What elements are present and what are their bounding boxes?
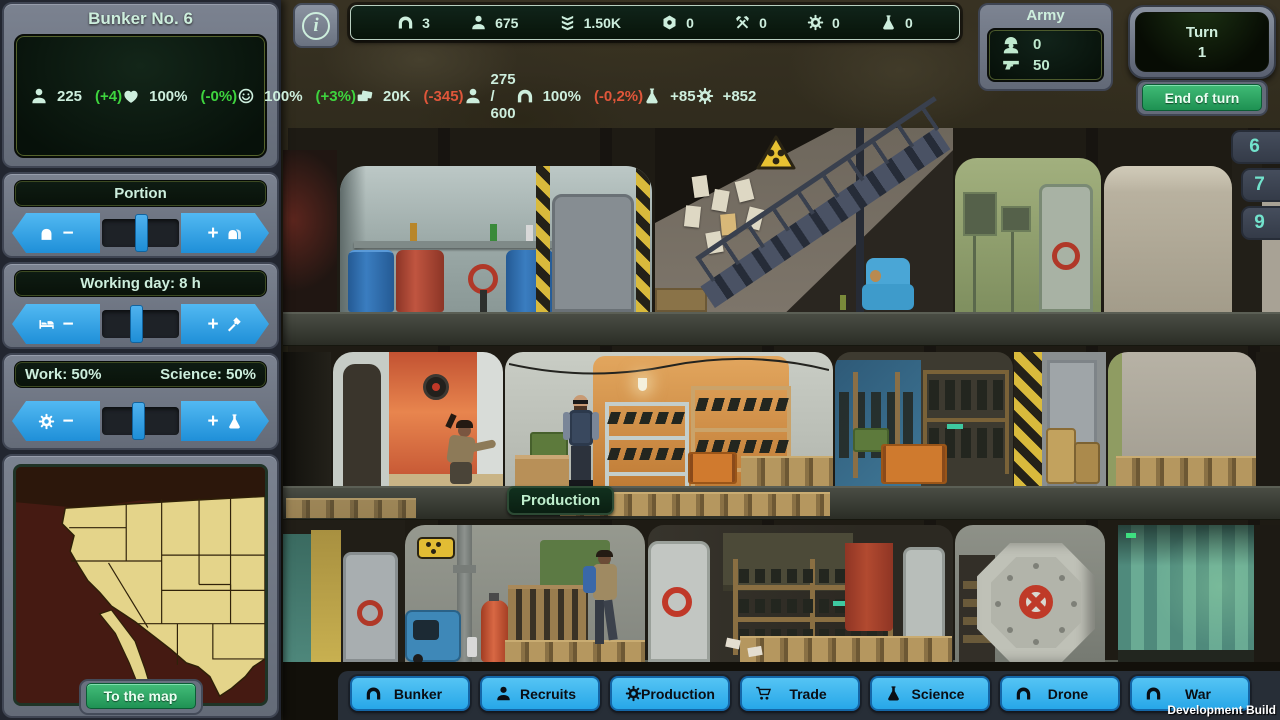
pipe-flange bbox=[453, 565, 476, 573]
stat-production: +852 bbox=[696, 42, 757, 150]
radiation-sign bbox=[755, 134, 797, 172]
stat-capacity: 275 / 600 bbox=[464, 42, 516, 150]
resource-tools: 0 bbox=[734, 14, 767, 31]
rank-icon bbox=[559, 14, 576, 31]
balance-header: Work: 50% Science: 50% bbox=[14, 361, 267, 388]
floor3-left bbox=[283, 520, 405, 662]
valve-pipe bbox=[480, 290, 487, 312]
weapon-rack bbox=[605, 402, 689, 486]
tools-icon bbox=[734, 14, 751, 31]
turn-panel: Turn 1 bbox=[1128, 5, 1276, 79]
minus-sign: − bbox=[62, 224, 73, 243]
machine-window bbox=[413, 620, 439, 640]
bunker-icon bbox=[1015, 685, 1032, 702]
yellow-wall bbox=[311, 530, 341, 662]
bunker-icon bbox=[397, 14, 414, 31]
plus-sign: + bbox=[207, 315, 218, 334]
pinned-paper bbox=[692, 175, 710, 198]
hazard-column bbox=[1014, 352, 1042, 486]
turn-display: Turn 1 bbox=[1135, 12, 1269, 72]
stat-condition: 100%(-0,2%) bbox=[516, 42, 644, 150]
barrel-blue bbox=[348, 250, 394, 312]
hair bbox=[596, 550, 613, 557]
teal-wall bbox=[283, 534, 311, 662]
floor-pallets bbox=[740, 636, 952, 662]
work-increase-button[interactable]: − bbox=[12, 401, 100, 441]
bed-icon bbox=[38, 316, 55, 333]
pinned-paper bbox=[735, 178, 755, 202]
workday-slider-track[interactable] bbox=[102, 310, 179, 338]
electrical-panel bbox=[963, 192, 997, 236]
walkway-planks bbox=[505, 640, 645, 662]
room-name-badge: Production bbox=[507, 486, 614, 515]
info-icon: i bbox=[302, 12, 330, 40]
resource-rank: 1.50K bbox=[559, 14, 621, 31]
character-walker[interactable] bbox=[585, 552, 623, 654]
resource-value: 0 bbox=[759, 15, 767, 31]
weapons-count: 50 bbox=[1033, 57, 1050, 74]
turn-number: 1 bbox=[1198, 44, 1206, 61]
stat-population: 225(+4) bbox=[30, 42, 122, 150]
floor-tab-6[interactable]: 6 bbox=[1231, 130, 1280, 164]
gun-row bbox=[607, 412, 687, 424]
stat-value: 275 / 600 bbox=[491, 71, 516, 122]
end-of-turn-button[interactable]: End of turn bbox=[1142, 84, 1262, 111]
pinned-paper bbox=[684, 205, 701, 227]
flask-icon bbox=[226, 413, 243, 430]
army-panel: Army 0 50 bbox=[978, 3, 1113, 91]
wire bbox=[973, 236, 976, 312]
working-day-slider: − + bbox=[12, 304, 269, 344]
door-opening bbox=[343, 364, 381, 486]
workday-increase-button[interactable]: + bbox=[181, 304, 269, 344]
flask-icon bbox=[885, 685, 902, 702]
room-electrical[interactable] bbox=[955, 158, 1101, 312]
science-icon bbox=[643, 87, 661, 105]
legs bbox=[450, 462, 472, 484]
minus-sign: − bbox=[62, 315, 73, 334]
vest-torso bbox=[569, 410, 593, 446]
nav-recruits-button[interactable]: Recruits bbox=[480, 676, 600, 711]
bunker-stats-panel: Bunker No. 6 225(+4) 100%(-0%) 100%(+3%)… bbox=[2, 2, 279, 168]
floor2-left-dark bbox=[283, 352, 331, 486]
floor-tab-9[interactable]: 9 bbox=[1241, 206, 1280, 240]
leg bbox=[595, 600, 604, 644]
army-soldiers: 0 bbox=[1001, 35, 1090, 55]
workday-decrease-button[interactable]: − bbox=[12, 304, 100, 344]
legs bbox=[571, 446, 591, 480]
room-ceiling-light bbox=[1104, 166, 1232, 192]
info-button[interactable]: i bbox=[293, 3, 339, 48]
population-icon bbox=[470, 14, 487, 31]
hair bbox=[456, 420, 473, 428]
nav-science-button[interactable]: Science bbox=[870, 676, 990, 711]
room-storage-barrels[interactable] bbox=[340, 166, 652, 312]
turn-label: Turn bbox=[1186, 24, 1218, 41]
production-icon bbox=[696, 87, 714, 105]
red-curtain bbox=[845, 543, 893, 631]
stat-value: 100% bbox=[264, 88, 302, 105]
resource-value: 0 bbox=[832, 15, 840, 31]
nav-label: Drone bbox=[1048, 686, 1088, 702]
concrete-column bbox=[1256, 352, 1280, 486]
portion-slider-track[interactable] bbox=[102, 219, 179, 247]
stat-science: +85 bbox=[643, 42, 695, 150]
portion-slider: − + bbox=[12, 213, 269, 253]
hazard-stripe-column bbox=[636, 166, 650, 312]
portion-panel: Portion − + bbox=[2, 172, 279, 258]
stat-delta: (+3%) bbox=[316, 88, 356, 105]
arm bbox=[592, 412, 599, 440]
room-red-glow[interactable] bbox=[283, 150, 337, 312]
map-preview[interactable] bbox=[13, 464, 268, 706]
paper-scrap bbox=[725, 638, 741, 650]
pistol-icon bbox=[1001, 55, 1021, 75]
door-wheel-red bbox=[357, 600, 383, 626]
flask-icon bbox=[880, 14, 897, 31]
balance-slider-track[interactable] bbox=[102, 407, 179, 435]
glasses bbox=[573, 400, 588, 404]
light-bulb bbox=[638, 378, 647, 391]
to-the-map-button[interactable]: To the map bbox=[86, 683, 196, 709]
led-indicator bbox=[1126, 533, 1136, 538]
gear-icon bbox=[807, 14, 824, 31]
door-wheel-red bbox=[1052, 242, 1080, 270]
bottle-white bbox=[526, 225, 533, 241]
blue-machine bbox=[405, 610, 461, 662]
nav-label: Production bbox=[641, 686, 715, 702]
floor-pallets bbox=[1116, 456, 1256, 486]
army-box: 0 50 bbox=[987, 28, 1104, 82]
stat-value: 225 bbox=[57, 88, 82, 105]
science-increase-button[interactable]: + bbox=[181, 401, 269, 441]
suitcase bbox=[1046, 428, 1076, 484]
work-table bbox=[515, 455, 569, 486]
development-build-label: Development Build bbox=[1167, 703, 1276, 717]
corridor bbox=[1042, 352, 1106, 486]
hanging-wire bbox=[509, 356, 829, 384]
portion-decrease-button[interactable]: − bbox=[12, 213, 100, 253]
resource-value: 1.50K bbox=[584, 15, 621, 31]
floor-bottle bbox=[840, 295, 846, 310]
porthole-dot bbox=[432, 383, 440, 391]
rack-post bbox=[853, 372, 858, 478]
left-sidebar: Bunker No. 6 225(+4) 100%(-0%) 100%(+3%)… bbox=[0, 0, 281, 720]
bottle-amber bbox=[410, 223, 417, 241]
room-armory[interactable] bbox=[835, 352, 1013, 486]
bread-loaf-icon bbox=[226, 225, 243, 242]
bunker-title: Bunker No. 6 bbox=[4, 4, 277, 29]
nav-production-button[interactable]: Production bbox=[610, 676, 730, 711]
bunker-stats-box: 225(+4) 100%(-0%) 100%(+3%) 20K(-345) 27… bbox=[14, 34, 267, 158]
portion-increase-button[interactable]: + bbox=[181, 213, 269, 253]
character-woman[interactable] bbox=[438, 420, 498, 486]
workday-slider-handle[interactable] bbox=[130, 305, 143, 343]
plus-sign: + bbox=[207, 412, 218, 431]
health-icon bbox=[122, 87, 140, 105]
gear-icon bbox=[625, 685, 642, 702]
arm bbox=[563, 412, 570, 440]
resource-bar: 3 675 1.50K 0 0 0 0 bbox=[350, 5, 960, 40]
bread-icon bbox=[38, 225, 55, 242]
room-floor-dark bbox=[1118, 650, 1254, 662]
stat-morale: 100%(+3%) bbox=[237, 42, 356, 150]
bottle-green bbox=[490, 224, 497, 241]
stat-value: +852 bbox=[723, 88, 757, 105]
green-glow-overlay bbox=[1118, 525, 1254, 662]
bottom-navbar: Bunker Recruits Production Trade Science… bbox=[350, 676, 1250, 711]
rack-shelf bbox=[925, 418, 1007, 422]
portion-slider-handle[interactable] bbox=[135, 214, 148, 252]
character-man[interactable] bbox=[563, 394, 599, 486]
components-icon bbox=[661, 14, 678, 31]
bunker-condition-icon bbox=[516, 87, 534, 105]
wooden-crate bbox=[655, 288, 707, 312]
soldier-icon bbox=[1001, 35, 1021, 55]
radiation-plate bbox=[417, 537, 455, 559]
hazard-stripe-column bbox=[536, 166, 550, 312]
slab-pallets bbox=[286, 498, 416, 518]
stat-money: 20K(-345) bbox=[356, 42, 464, 150]
stat-delta: (+4) bbox=[95, 88, 122, 105]
recruits-icon bbox=[495, 685, 512, 702]
nav-drone-button[interactable]: Drone bbox=[1000, 676, 1120, 711]
map-panel: To the map bbox=[2, 454, 279, 718]
room-quarters-orange[interactable] bbox=[333, 352, 503, 486]
nav-label: Trade bbox=[789, 686, 826, 702]
rack-shelf bbox=[607, 472, 687, 476]
soldiers-count: 0 bbox=[1033, 36, 1041, 53]
gun-row bbox=[695, 398, 789, 411]
jacket bbox=[593, 564, 617, 600]
small-can bbox=[467, 637, 477, 657]
gun-glow-accent bbox=[947, 424, 963, 429]
portion-header: Portion bbox=[14, 180, 267, 207]
nav-label: Bunker bbox=[394, 686, 442, 702]
teddy-bear bbox=[870, 270, 881, 282]
resource-population: 675 bbox=[470, 14, 518, 31]
wire bbox=[1011, 232, 1014, 312]
stat-value: 100% bbox=[543, 88, 581, 105]
resource-production: 0 bbox=[807, 14, 840, 31]
wheel bbox=[413, 654, 423, 662]
plus-sign: + bbox=[207, 224, 218, 243]
us-map bbox=[16, 467, 265, 703]
gear-icon bbox=[38, 413, 55, 430]
working-day-header: Working day: 8 h bbox=[14, 270, 267, 297]
balance-slider: − + bbox=[12, 401, 269, 441]
door-gray bbox=[552, 194, 634, 312]
armchair-seat bbox=[862, 284, 914, 310]
stat-value: 100% bbox=[149, 88, 187, 105]
orange-crate bbox=[688, 452, 737, 484]
gun-row bbox=[929, 380, 1005, 410]
stat-delta: (-0,2%) bbox=[594, 88, 643, 105]
stat-value: 20K bbox=[383, 88, 411, 105]
suitcase-small bbox=[1074, 442, 1100, 484]
room-vault[interactable] bbox=[955, 525, 1105, 662]
resource-value: 0 bbox=[686, 15, 694, 31]
barrel-red bbox=[396, 250, 444, 312]
nav-trade-button[interactable]: Trade bbox=[740, 676, 860, 711]
concrete-column bbox=[1254, 525, 1280, 662]
vault-door-octagon bbox=[977, 543, 1095, 662]
gun-row bbox=[607, 448, 687, 460]
work-science-panel: Work: 50% Science: 50% − + bbox=[2, 353, 279, 450]
floor-pallets bbox=[741, 456, 833, 486]
resource-value: 3 bbox=[422, 15, 430, 31]
electrical-panel bbox=[1001, 206, 1031, 232]
vault-bolts bbox=[1033, 563, 1039, 569]
nav-label: War bbox=[1185, 686, 1211, 702]
rack-shelf bbox=[693, 428, 789, 432]
game-screen: Production Bunker No. 6 225(+4) 100%(-0%… bbox=[0, 0, 1280, 720]
floor-tab-7[interactable]: 7 bbox=[1241, 168, 1280, 202]
science-label: Science: 50% bbox=[160, 366, 256, 383]
pinned-paper bbox=[711, 189, 729, 212]
trefoil-dots bbox=[426, 542, 431, 547]
backpack bbox=[583, 566, 596, 593]
army-weapons: 50 bbox=[1001, 55, 1090, 75]
room-production[interactable] bbox=[505, 352, 833, 486]
army-title: Army bbox=[980, 7, 1111, 24]
floor-slab-top bbox=[283, 312, 1280, 346]
bunker-icon bbox=[1145, 685, 1162, 702]
nav-label: Science bbox=[912, 686, 965, 702]
minus-sign: − bbox=[62, 412, 73, 431]
orange-crate-large bbox=[881, 444, 947, 484]
stat-delta: (-0%) bbox=[201, 88, 238, 105]
work-label: Work: 50% bbox=[25, 366, 101, 383]
rack-shelf bbox=[607, 436, 687, 440]
balance-slider-handle[interactable] bbox=[132, 402, 145, 440]
stat-health: 100%(-0%) bbox=[122, 42, 237, 150]
resource-value: 675 bbox=[495, 15, 518, 31]
room-generator[interactable] bbox=[405, 525, 645, 662]
bunker-icon bbox=[365, 685, 382, 702]
stat-value: +85 bbox=[670, 88, 695, 105]
resource-bunkers: 3 bbox=[397, 14, 430, 31]
room-teal-corrugated[interactable] bbox=[1118, 525, 1254, 662]
cylinder-valve bbox=[489, 593, 499, 601]
capacity-icon bbox=[464, 87, 482, 105]
nav-label: Recruits bbox=[520, 686, 576, 702]
working-day-panel: Working day: 8 h − + bbox=[2, 262, 279, 349]
red-ring-wheel bbox=[662, 587, 692, 617]
population-icon bbox=[30, 87, 48, 105]
stat-delta: (-345) bbox=[424, 88, 464, 105]
room-pallets-beige[interactable] bbox=[1108, 352, 1256, 486]
cart-icon bbox=[755, 685, 772, 702]
room-dark-storage[interactable] bbox=[648, 525, 953, 662]
morale-icon bbox=[237, 87, 255, 105]
room-empty-beige[interactable] bbox=[1104, 166, 1232, 312]
resource-science: 0 bbox=[880, 14, 913, 31]
money-icon bbox=[356, 87, 374, 105]
resource-components: 0 bbox=[661, 14, 694, 31]
leg bbox=[603, 600, 617, 641]
work-icon bbox=[226, 316, 243, 333]
nav-bunker-button[interactable]: Bunker bbox=[350, 676, 470, 711]
resource-value: 0 bbox=[905, 15, 913, 31]
